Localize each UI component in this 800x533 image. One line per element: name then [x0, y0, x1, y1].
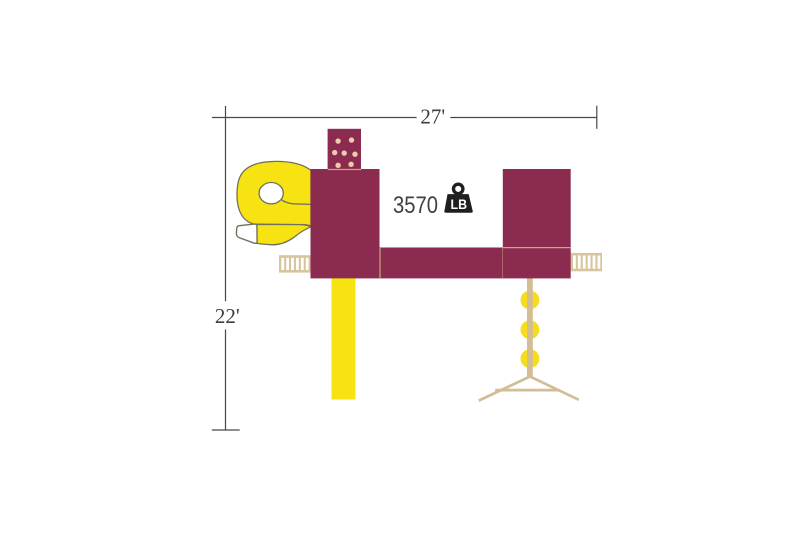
svg-text:3570: 3570 [393, 192, 438, 219]
svg-text:22': 22' [215, 304, 240, 328]
svg-text:LB: LB [451, 197, 468, 212]
svg-text:27': 27' [420, 104, 445, 128]
